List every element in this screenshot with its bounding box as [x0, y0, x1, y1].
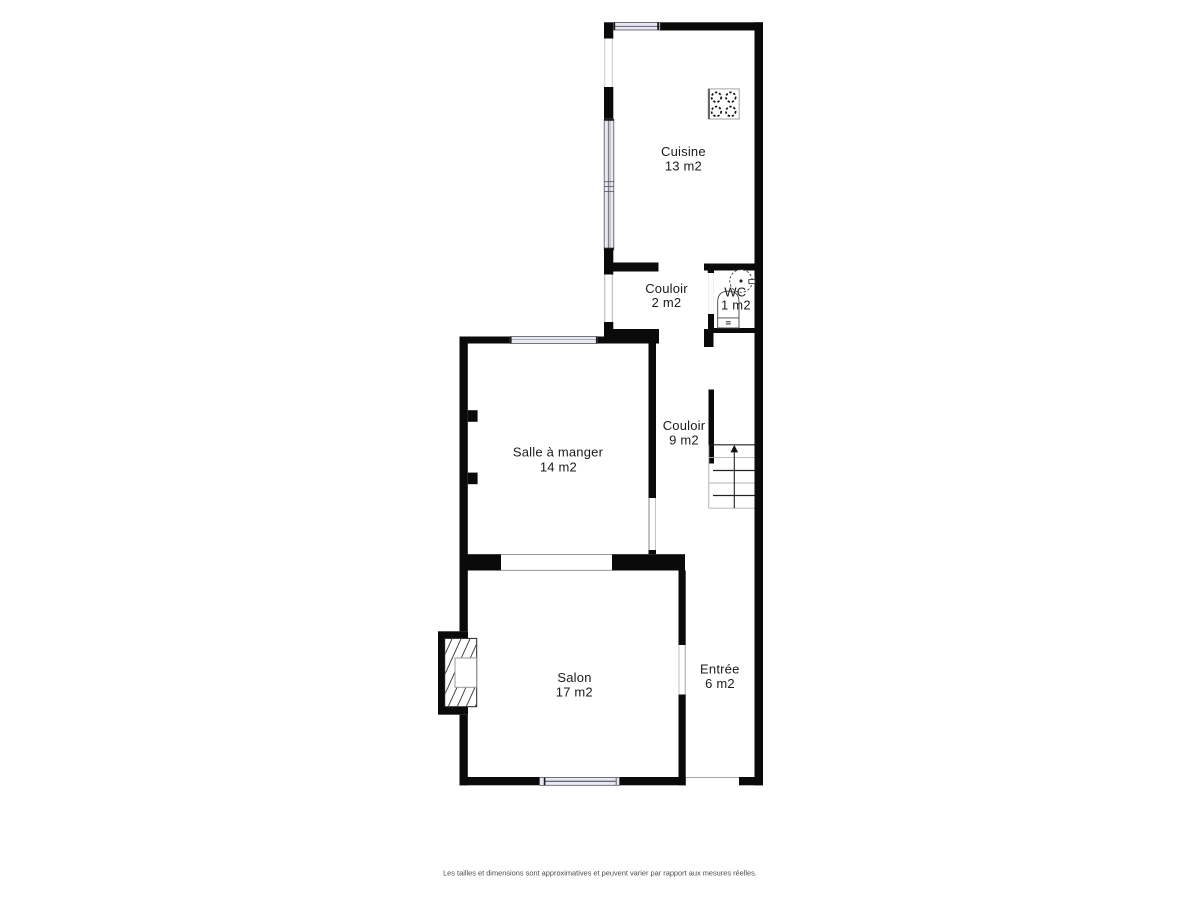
- svg-text:9 m2: 9 m2: [669, 432, 699, 447]
- svg-text:13 m2: 13 m2: [665, 159, 702, 174]
- svg-text:Entrée: Entrée: [700, 662, 740, 677]
- svg-text:Couloir: Couloir: [645, 281, 688, 296]
- svg-text:Les tailles et dimensions sont: Les tailles et dimensions sont approxima…: [443, 869, 757, 878]
- svg-text:Salon: Salon: [557, 670, 591, 685]
- svg-text:14 m2: 14 m2: [540, 459, 577, 474]
- svg-text:1 m2: 1 m2: [721, 297, 751, 312]
- svg-text:Cuisine: Cuisine: [661, 144, 706, 159]
- svg-text:17 m2: 17 m2: [556, 684, 593, 699]
- svg-text:6 m2: 6 m2: [705, 676, 735, 691]
- svg-text:2 m2: 2 m2: [652, 295, 682, 310]
- svg-text:Salle à manger: Salle à manger: [513, 445, 604, 460]
- svg-text:Couloir: Couloir: [663, 418, 706, 433]
